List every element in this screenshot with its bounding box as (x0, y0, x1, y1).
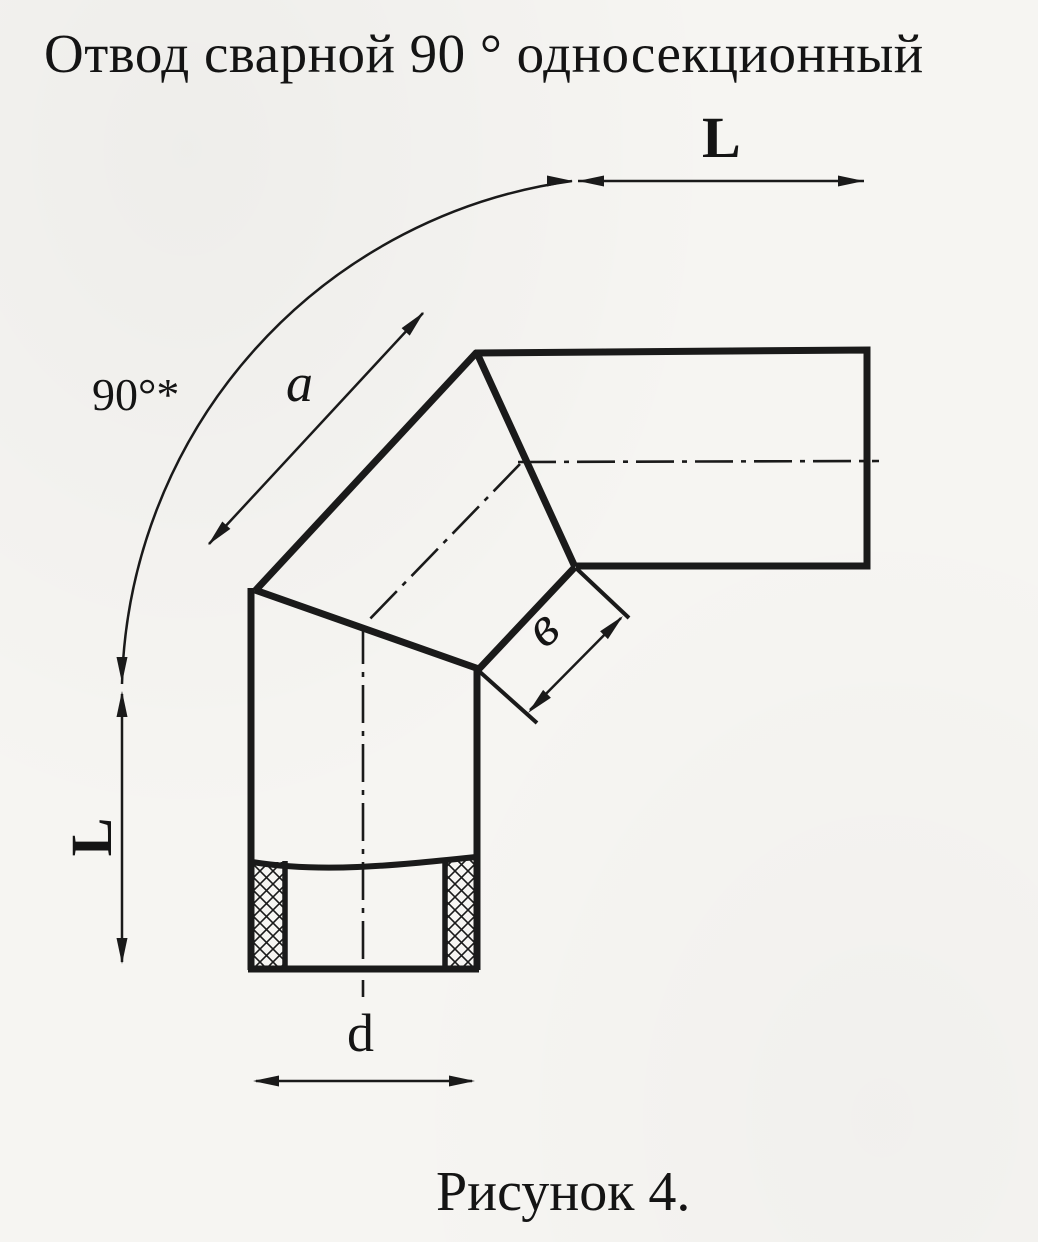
horizontal-pipe-centerline (518, 461, 879, 462)
dim-left-length-L (106, 671, 477, 969)
dim-arc-90deg (117, 176, 574, 685)
L-top-arrow-left (578, 176, 604, 187)
dim-top-length-L (575, 169, 867, 562)
miter-diagonal-centerline (366, 464, 520, 623)
horizontal-pipe-outline (475, 350, 867, 566)
L-left-arrow-top (117, 691, 128, 717)
L-top-arrow-right (838, 176, 864, 187)
pipe-outline (248, 350, 867, 970)
dim-line-a (209, 313, 423, 544)
figure-caption: Рисунок 4. (436, 1160, 690, 1224)
label-angle-90: 90°* (92, 368, 179, 421)
arc-arrowhead-top (547, 176, 573, 187)
label-diameter-d: d (347, 1002, 374, 1064)
centerlines (363, 461, 879, 997)
ext-line-bottom (106, 966, 250, 969)
b-extension-lower (480, 672, 537, 723)
elbow-technical-drawing (0, 0, 1038, 1242)
label-section-a: a (286, 352, 313, 414)
L-left-arrow-bottom (117, 938, 128, 964)
d-arrow-right (449, 1076, 475, 1087)
angle-arc (122, 181, 572, 684)
label-top-length: L (702, 104, 741, 171)
b-extension-upper (577, 569, 629, 618)
a-ext-line-upper (414, 295, 471, 349)
ext-line-top (109, 671, 477, 688)
miter-bottom-edge (255, 590, 479, 669)
arc-arrowhead-bottom (117, 657, 128, 683)
seal-ring-right-hatch (447, 859, 475, 967)
seal-ring-left-hatch (254, 862, 283, 967)
dim-miter-outer-a (190, 295, 471, 588)
a-ext-line-lower (190, 531, 252, 588)
weld-seam-upper (476, 351, 575, 567)
label-left-length: L (60, 806, 122, 868)
drawing-sheet: Отвод сварной 90 ° односекционный (0, 0, 1038, 1242)
d-arrow-left (253, 1076, 279, 1087)
